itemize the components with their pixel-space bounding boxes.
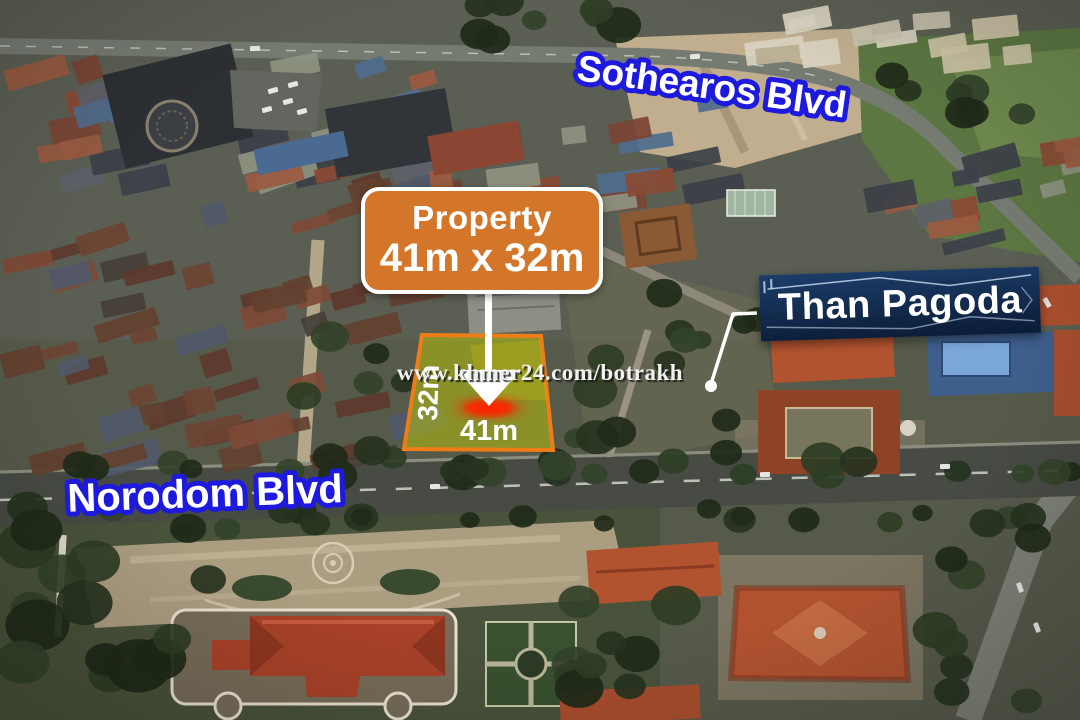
- property-callout-size: 41m x 32m: [380, 236, 585, 281]
- property-callout-title: Property: [412, 200, 552, 236]
- plot-width-label: 41m: [460, 415, 518, 447]
- landmark-banner-label: Than Pagoda: [777, 279, 1022, 330]
- watermark-text: www.khmer24.com/botrakh: [0, 360, 1080, 386]
- property-callout: Property 41m x 32m: [361, 187, 603, 294]
- real-estate-listing-image: 41m 32m Sothearos Blvd Norodom Blvd Prop…: [0, 0, 1080, 720]
- landmark-banner: Than Pagoda: [759, 267, 1041, 342]
